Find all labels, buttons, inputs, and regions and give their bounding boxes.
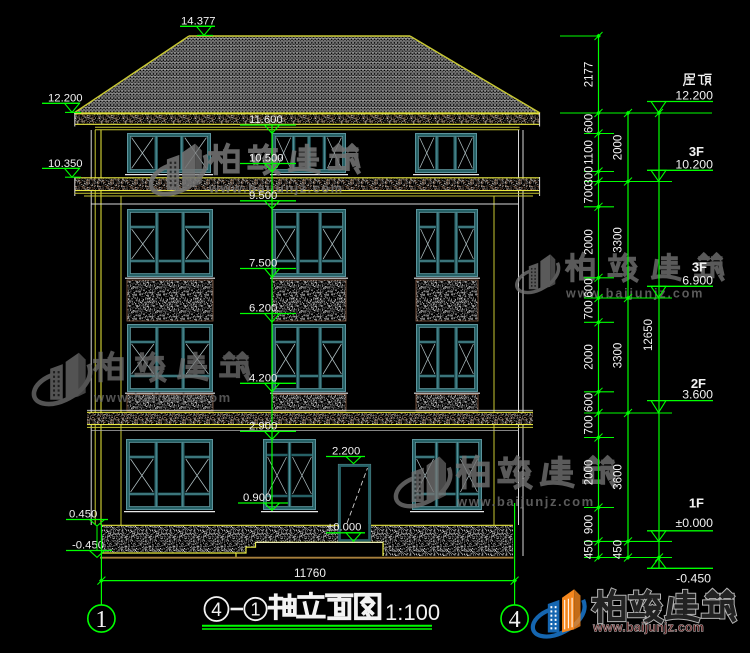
svg-text:2177: 2177 (584, 62, 596, 88)
svg-text:-0.450: -0.450 (676, 572, 711, 586)
svg-text:7.500: 7.500 (249, 258, 277, 270)
svg-text:700: 700 (584, 415, 596, 434)
svg-text:1: 1 (250, 600, 260, 620)
svg-text:3F: 3F (692, 260, 707, 275)
svg-text:450: 450 (613, 540, 625, 559)
svg-text:700: 700 (584, 184, 596, 203)
svg-text:2.200: 2.200 (332, 446, 360, 458)
svg-text:12.200: 12.200 (675, 89, 713, 103)
svg-text:600: 600 (584, 393, 596, 412)
svg-text:2000: 2000 (584, 344, 596, 370)
svg-text:www.baijunjz.com: www.baijunjz.com (93, 390, 232, 405)
svg-text:3300: 3300 (613, 343, 625, 369)
svg-text:1: 1 (95, 607, 107, 633)
svg-text:900: 900 (584, 515, 596, 534)
svg-text:3600: 3600 (613, 464, 625, 490)
svg-text:600: 600 (584, 114, 596, 133)
svg-text:10.500: 10.500 (249, 153, 284, 165)
svg-text:0.450: 0.450 (69, 509, 97, 521)
svg-text:2000: 2000 (584, 229, 596, 255)
svg-text:6.200: 6.200 (249, 303, 277, 315)
svg-text:600: 600 (584, 278, 596, 297)
svg-text:12650: 12650 (643, 319, 655, 351)
svg-text:300: 300 (584, 166, 596, 185)
svg-text:-0.450: -0.450 (72, 540, 104, 552)
svg-text:700: 700 (584, 300, 596, 319)
svg-text:±0.000: ±0.000 (675, 516, 713, 530)
svg-text:3.600: 3.600 (682, 388, 713, 402)
svg-text:0.900: 0.900 (243, 492, 271, 504)
svg-text:www.baijunjz.com: www.baijunjz.com (456, 494, 595, 509)
svg-text:2000: 2000 (613, 135, 625, 161)
svg-text:1F: 1F (689, 496, 704, 511)
svg-text:10.200: 10.200 (675, 158, 713, 172)
svg-text:11760: 11760 (294, 566, 326, 580)
svg-text:2000: 2000 (584, 460, 596, 486)
svg-text:6.900: 6.900 (682, 274, 713, 288)
svg-text:1100: 1100 (584, 140, 596, 165)
svg-text:1:100: 1:100 (385, 600, 440, 625)
svg-text:4: 4 (509, 607, 521, 633)
svg-text:11.600: 11.600 (249, 114, 283, 126)
svg-text:www.baijunjz.com: www.baijunjz.com (592, 621, 704, 635)
svg-text:±0.000: ±0.000 (327, 522, 361, 534)
svg-text:450: 450 (584, 540, 596, 559)
svg-text:2.900: 2.900 (249, 421, 277, 433)
svg-text:3300: 3300 (613, 227, 625, 253)
svg-text:4: 4 (211, 600, 222, 621)
